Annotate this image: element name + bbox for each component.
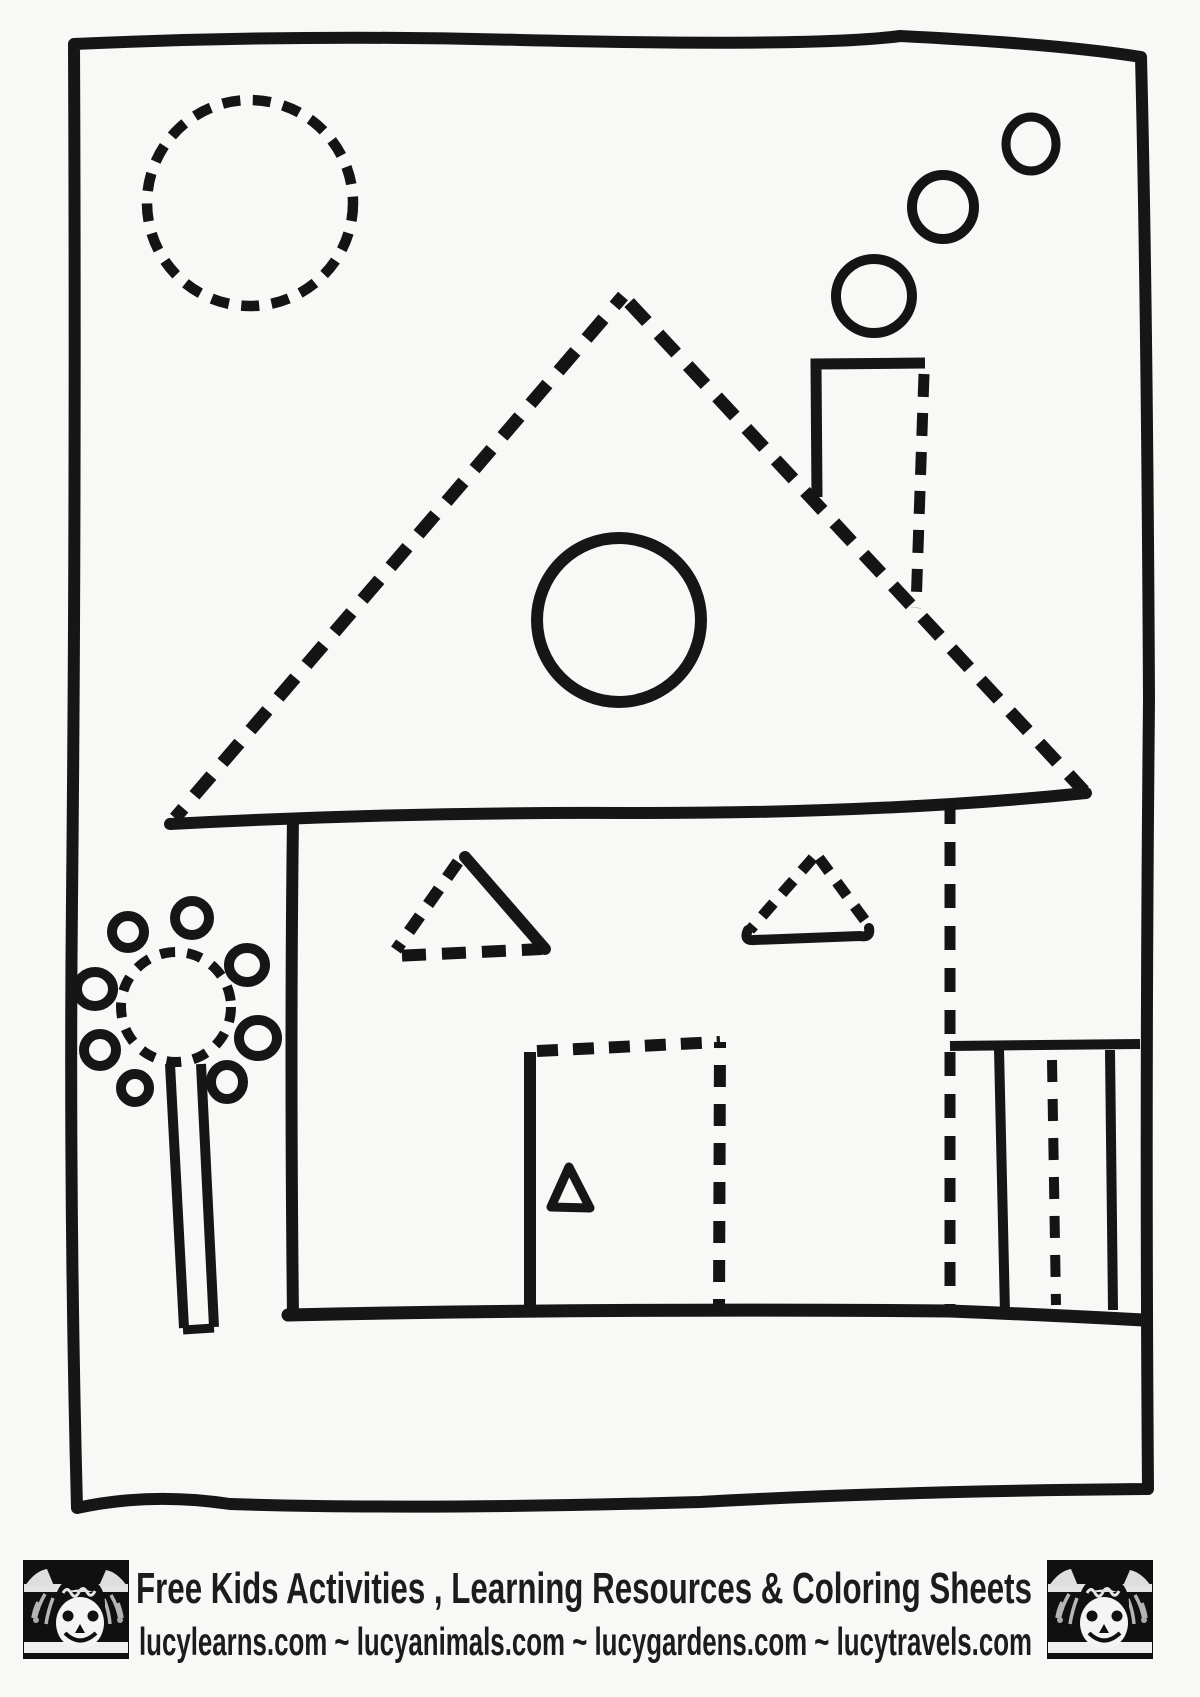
svg-text:lucylearns.com ~ lucyanimals.c: lucylearns.com ~ lucyanimals.com ~ lucyg… (139, 1621, 1032, 1664)
svg-text:Free Kids Activities , Learnin: Free Kids Activities , Learning Resource… (136, 1564, 1032, 1613)
